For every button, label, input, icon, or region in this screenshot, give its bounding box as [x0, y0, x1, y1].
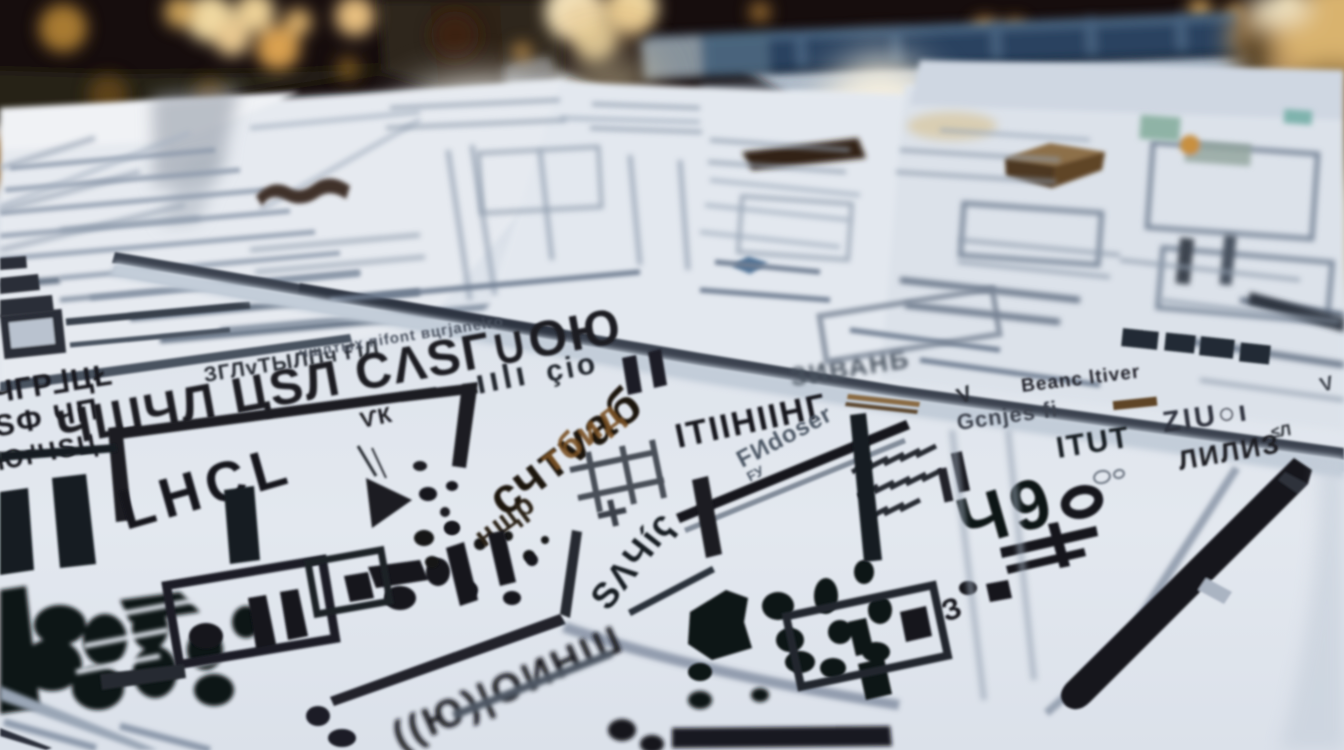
svg-text:≤Л: ≤Л — [1270, 422, 1292, 442]
